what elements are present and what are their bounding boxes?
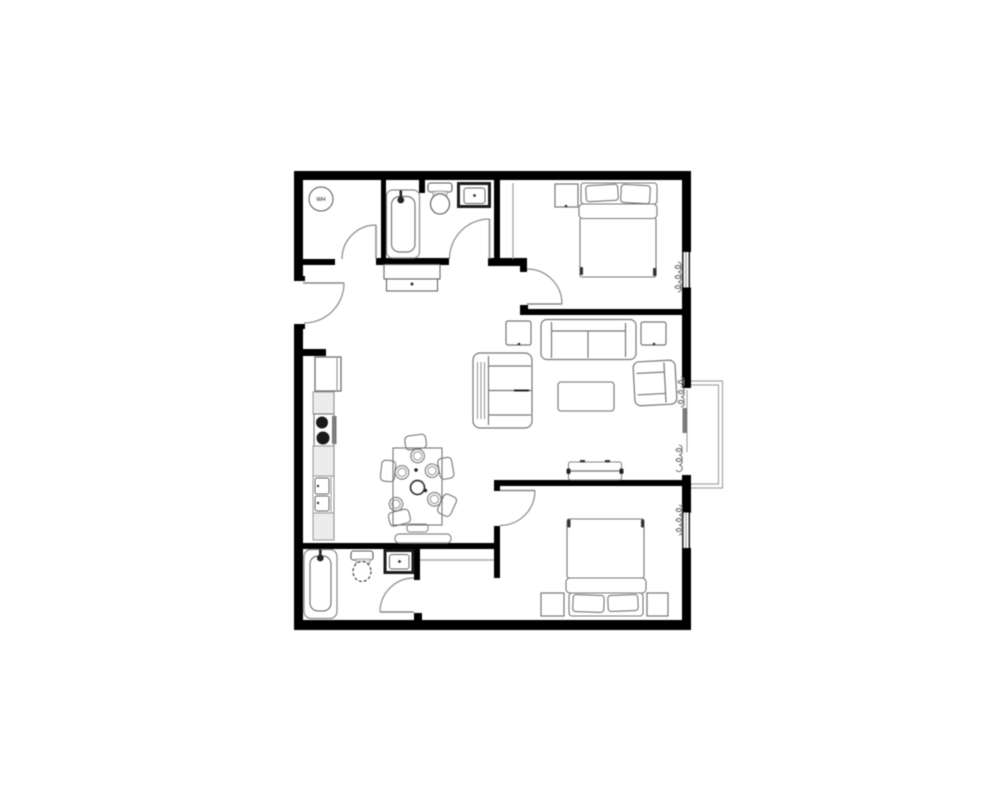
svg-text:WH: WH <box>316 197 325 203</box>
